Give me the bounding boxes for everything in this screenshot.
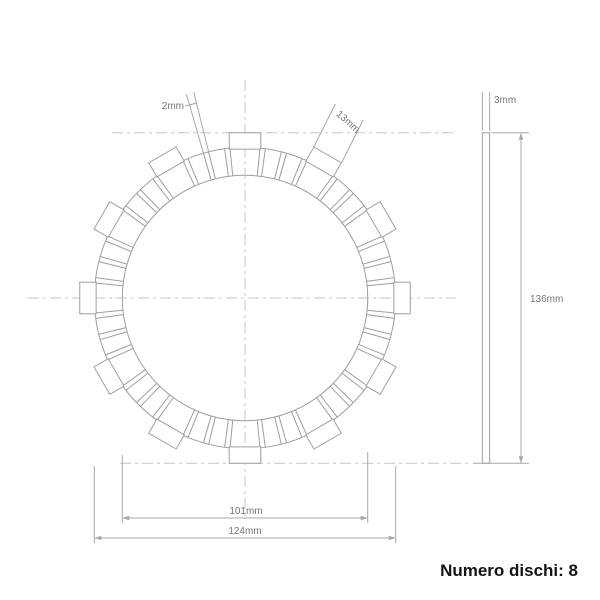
dim-label-overall-diameter: 136mm — [530, 294, 563, 305]
dim-label-groove-width: 2mm — [162, 101, 184, 112]
dim-label-thickness: 3mm — [494, 95, 516, 106]
drawing-page: 2mm 13mm 3mm 136mm 101mm 124mm Numero di… — [0, 0, 600, 600]
disc-count-label: Numero dischi: 8 — [440, 561, 578, 581]
side-view-plate — [482, 133, 489, 463]
dim-label-outer-diameter: 124mm — [228, 526, 261, 537]
dim-label-inner-diameter: 101mm — [229, 506, 262, 517]
technical-drawing-canvas: 2mm 13mm 3mm 136mm 101mm 124mm — [0, 0, 600, 600]
dim-label-tab-width: 13mm — [334, 109, 362, 136]
